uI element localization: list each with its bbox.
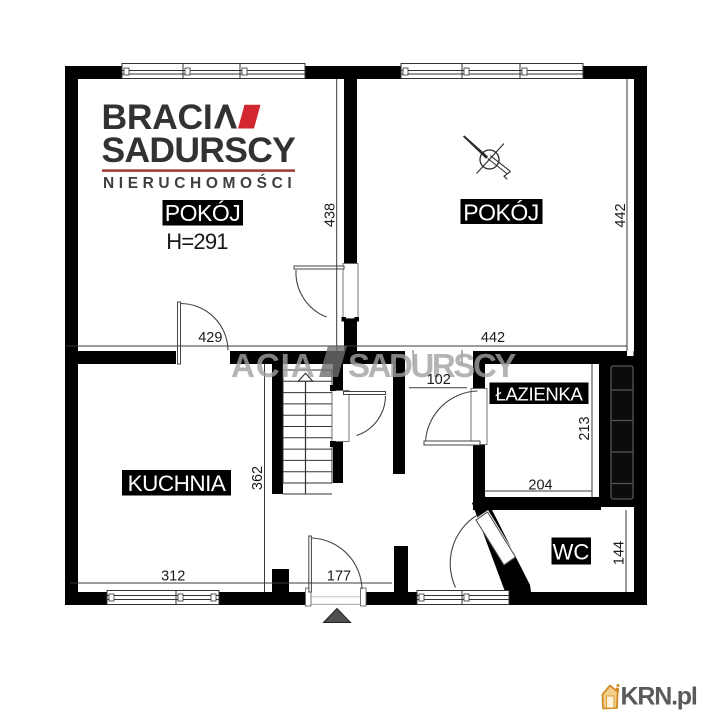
svg-text:WC: WC bbox=[553, 540, 590, 565]
svg-text:362: 362 bbox=[250, 466, 266, 490]
svg-text:312: 312 bbox=[161, 569, 185, 585]
svg-text:102: 102 bbox=[427, 372, 451, 388]
svg-text:429: 429 bbox=[198, 330, 222, 346]
svg-text:SADURSCY: SADURSCY bbox=[102, 130, 297, 170]
svg-text:144: 144 bbox=[612, 541, 628, 565]
svg-text:442: 442 bbox=[481, 330, 505, 346]
svg-text:442: 442 bbox=[613, 203, 629, 227]
svg-text:204: 204 bbox=[528, 478, 552, 494]
svg-text:POKÓJ: POKÓJ bbox=[165, 200, 240, 226]
svg-text:H=291: H=291 bbox=[166, 229, 228, 254]
svg-text:ACIA: ACIA bbox=[231, 347, 316, 384]
svg-text:213: 213 bbox=[577, 416, 593, 440]
svg-text:KRN.pl: KRN.pl bbox=[621, 683, 697, 711]
svg-text:POKÓJ: POKÓJ bbox=[463, 199, 538, 225]
svg-text:KUCHNIA: KUCHNIA bbox=[128, 471, 226, 496]
svg-text:ŁAZIENKA: ŁAZIENKA bbox=[495, 383, 583, 404]
svg-text:438: 438 bbox=[323, 203, 339, 227]
svg-text:NIERUCHOMOŚCI: NIERUCHOMOŚCI bbox=[103, 174, 296, 192]
svg-text:177: 177 bbox=[327, 569, 351, 585]
